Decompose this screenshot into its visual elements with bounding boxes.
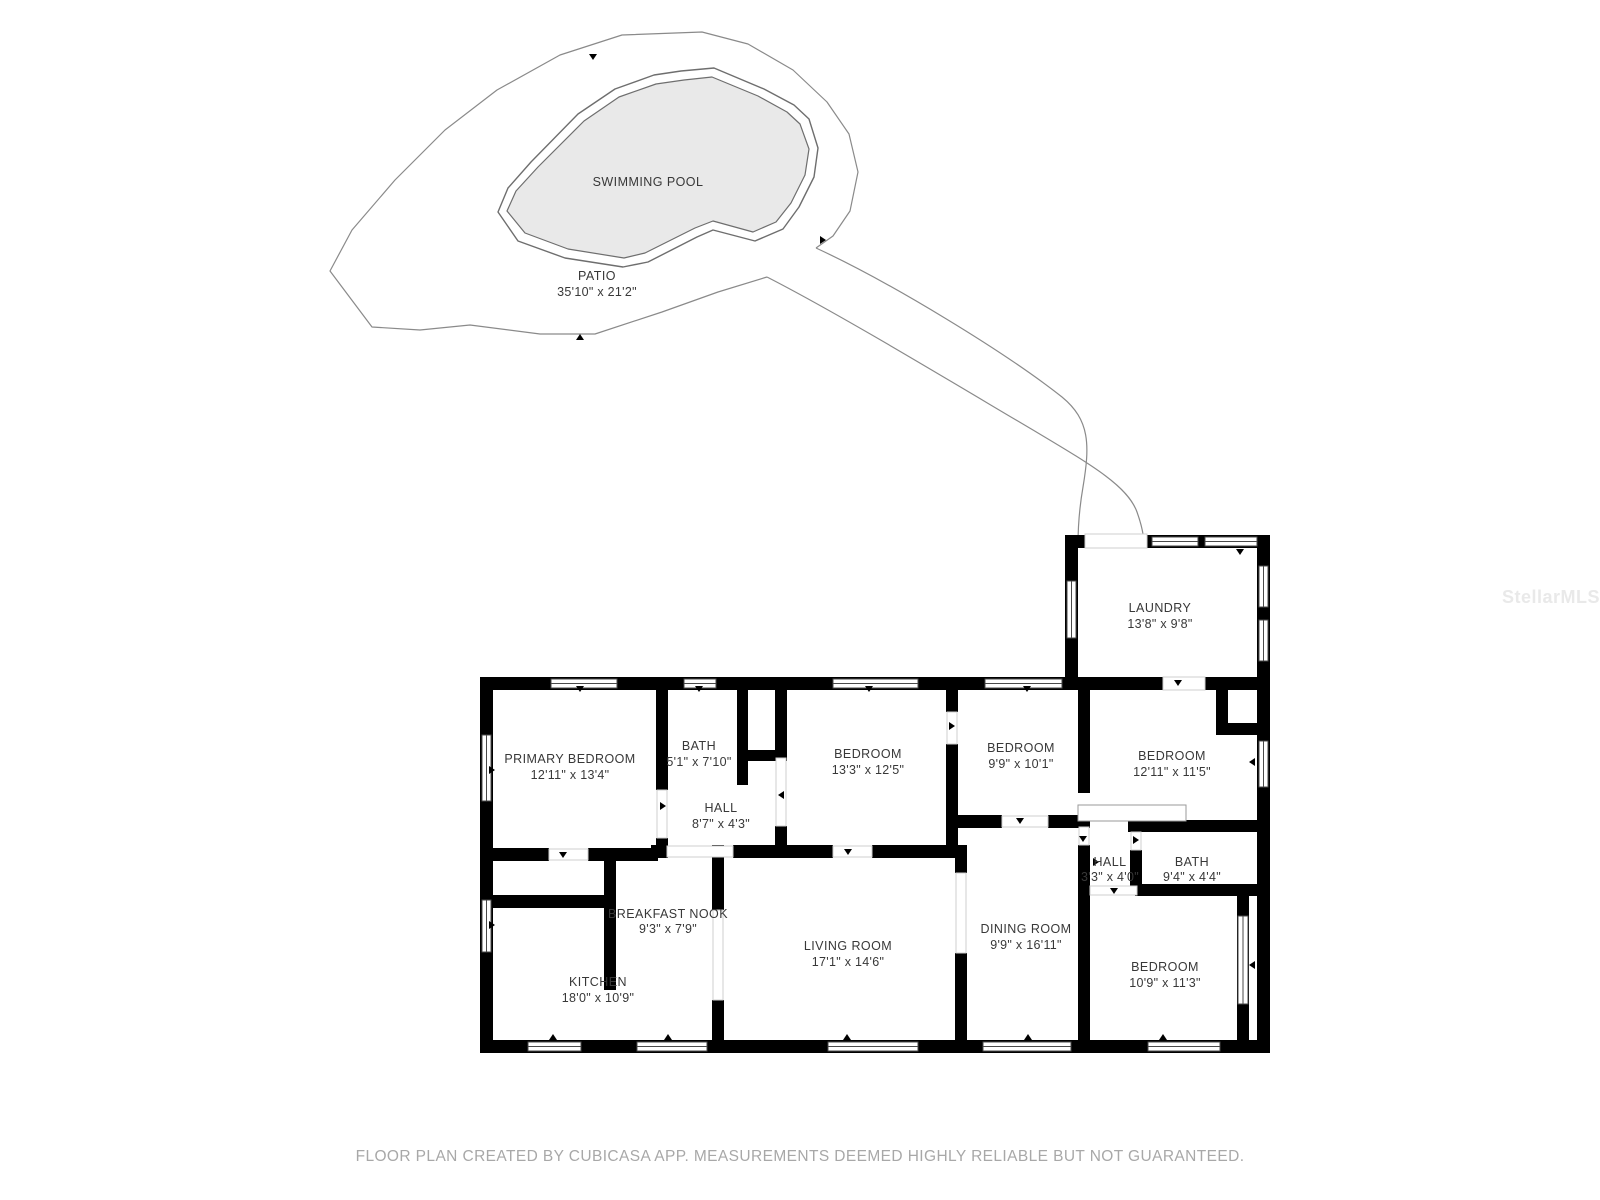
- room-label-laundry: LAUNDRY: [1129, 601, 1192, 615]
- room-label-dining-room: DINING ROOM: [980, 922, 1071, 936]
- floor-plan-page: SWIMMING POOL PATIO 35'10" x 21'2": [0, 0, 1600, 1200]
- room-label-bath-2: BATH: [1175, 855, 1209, 869]
- room-label-bedroom-3: BEDROOM: [987, 741, 1055, 755]
- stellar-mls-watermark: StellarMLS: [1502, 587, 1600, 607]
- room-dims-laundry: 13'8" x 9'8": [1127, 617, 1192, 631]
- floor-plan-canvas: SWIMMING POOL PATIO 35'10" x 21'2": [0, 0, 1600, 1200]
- room-dims-primary-bedroom: 12'11" x 13'4": [531, 768, 610, 782]
- room-dims-living-room: 17'1" x 14'6": [812, 955, 884, 969]
- room-dims-bath-1: 5'1" x 7'10": [666, 755, 731, 769]
- room-dims-bath-2: 9'4" x 4'4": [1163, 870, 1221, 884]
- pool-shape: [498, 68, 818, 267]
- room-label-bedroom-5: BEDROOM: [1131, 960, 1199, 974]
- room-label-bedroom-4: BEDROOM: [1138, 749, 1206, 763]
- room-label-hall-1: HALL: [704, 801, 737, 815]
- room-label-living-room: LIVING ROOM: [804, 939, 892, 953]
- room-label-bath-1: BATH: [682, 739, 716, 753]
- room-dims-hall-1: 8'7" x 4'3": [692, 817, 750, 831]
- room-label-hall-2: HALL: [1093, 855, 1126, 869]
- room-dims-breakfast-nook: 9'3" x 7'9": [639, 922, 697, 936]
- cabinet-outline: [1078, 805, 1186, 821]
- walkway-path: [767, 248, 1144, 545]
- room-label-primary-bedroom: PRIMARY BEDROOM: [504, 752, 635, 766]
- pool-label: SWIMMING POOL: [593, 175, 704, 189]
- room-dims-bedroom-5: 10'9" x 11'3": [1129, 976, 1201, 990]
- patio-dims: 35'10" x 21'2": [557, 285, 637, 299]
- room-dims-bedroom-3: 9'9" x 10'1": [988, 757, 1053, 771]
- room-label-breakfast-nook: BREAKFAST NOOK: [608, 907, 728, 921]
- footer-disclaimer: FLOOR PLAN CREATED BY CUBICASA APP. MEAS…: [356, 1148, 1245, 1165]
- room-dims-hall-2: 3'3" x 4'0": [1081, 870, 1139, 884]
- room-dims-kitchen: 18'0" x 10'9": [562, 991, 634, 1005]
- room-label-bedroom-2: BEDROOM: [834, 747, 902, 761]
- room-dims-dining-room: 9'9" x 16'11": [990, 938, 1062, 952]
- room-dims-bedroom-2: 13'3" x 12'5": [832, 763, 904, 777]
- room-dims-bedroom-4: 12'11" x 11'5": [1133, 765, 1211, 779]
- patio-label: PATIO: [578, 269, 616, 283]
- room-label-kitchen: KITCHEN: [569, 975, 627, 989]
